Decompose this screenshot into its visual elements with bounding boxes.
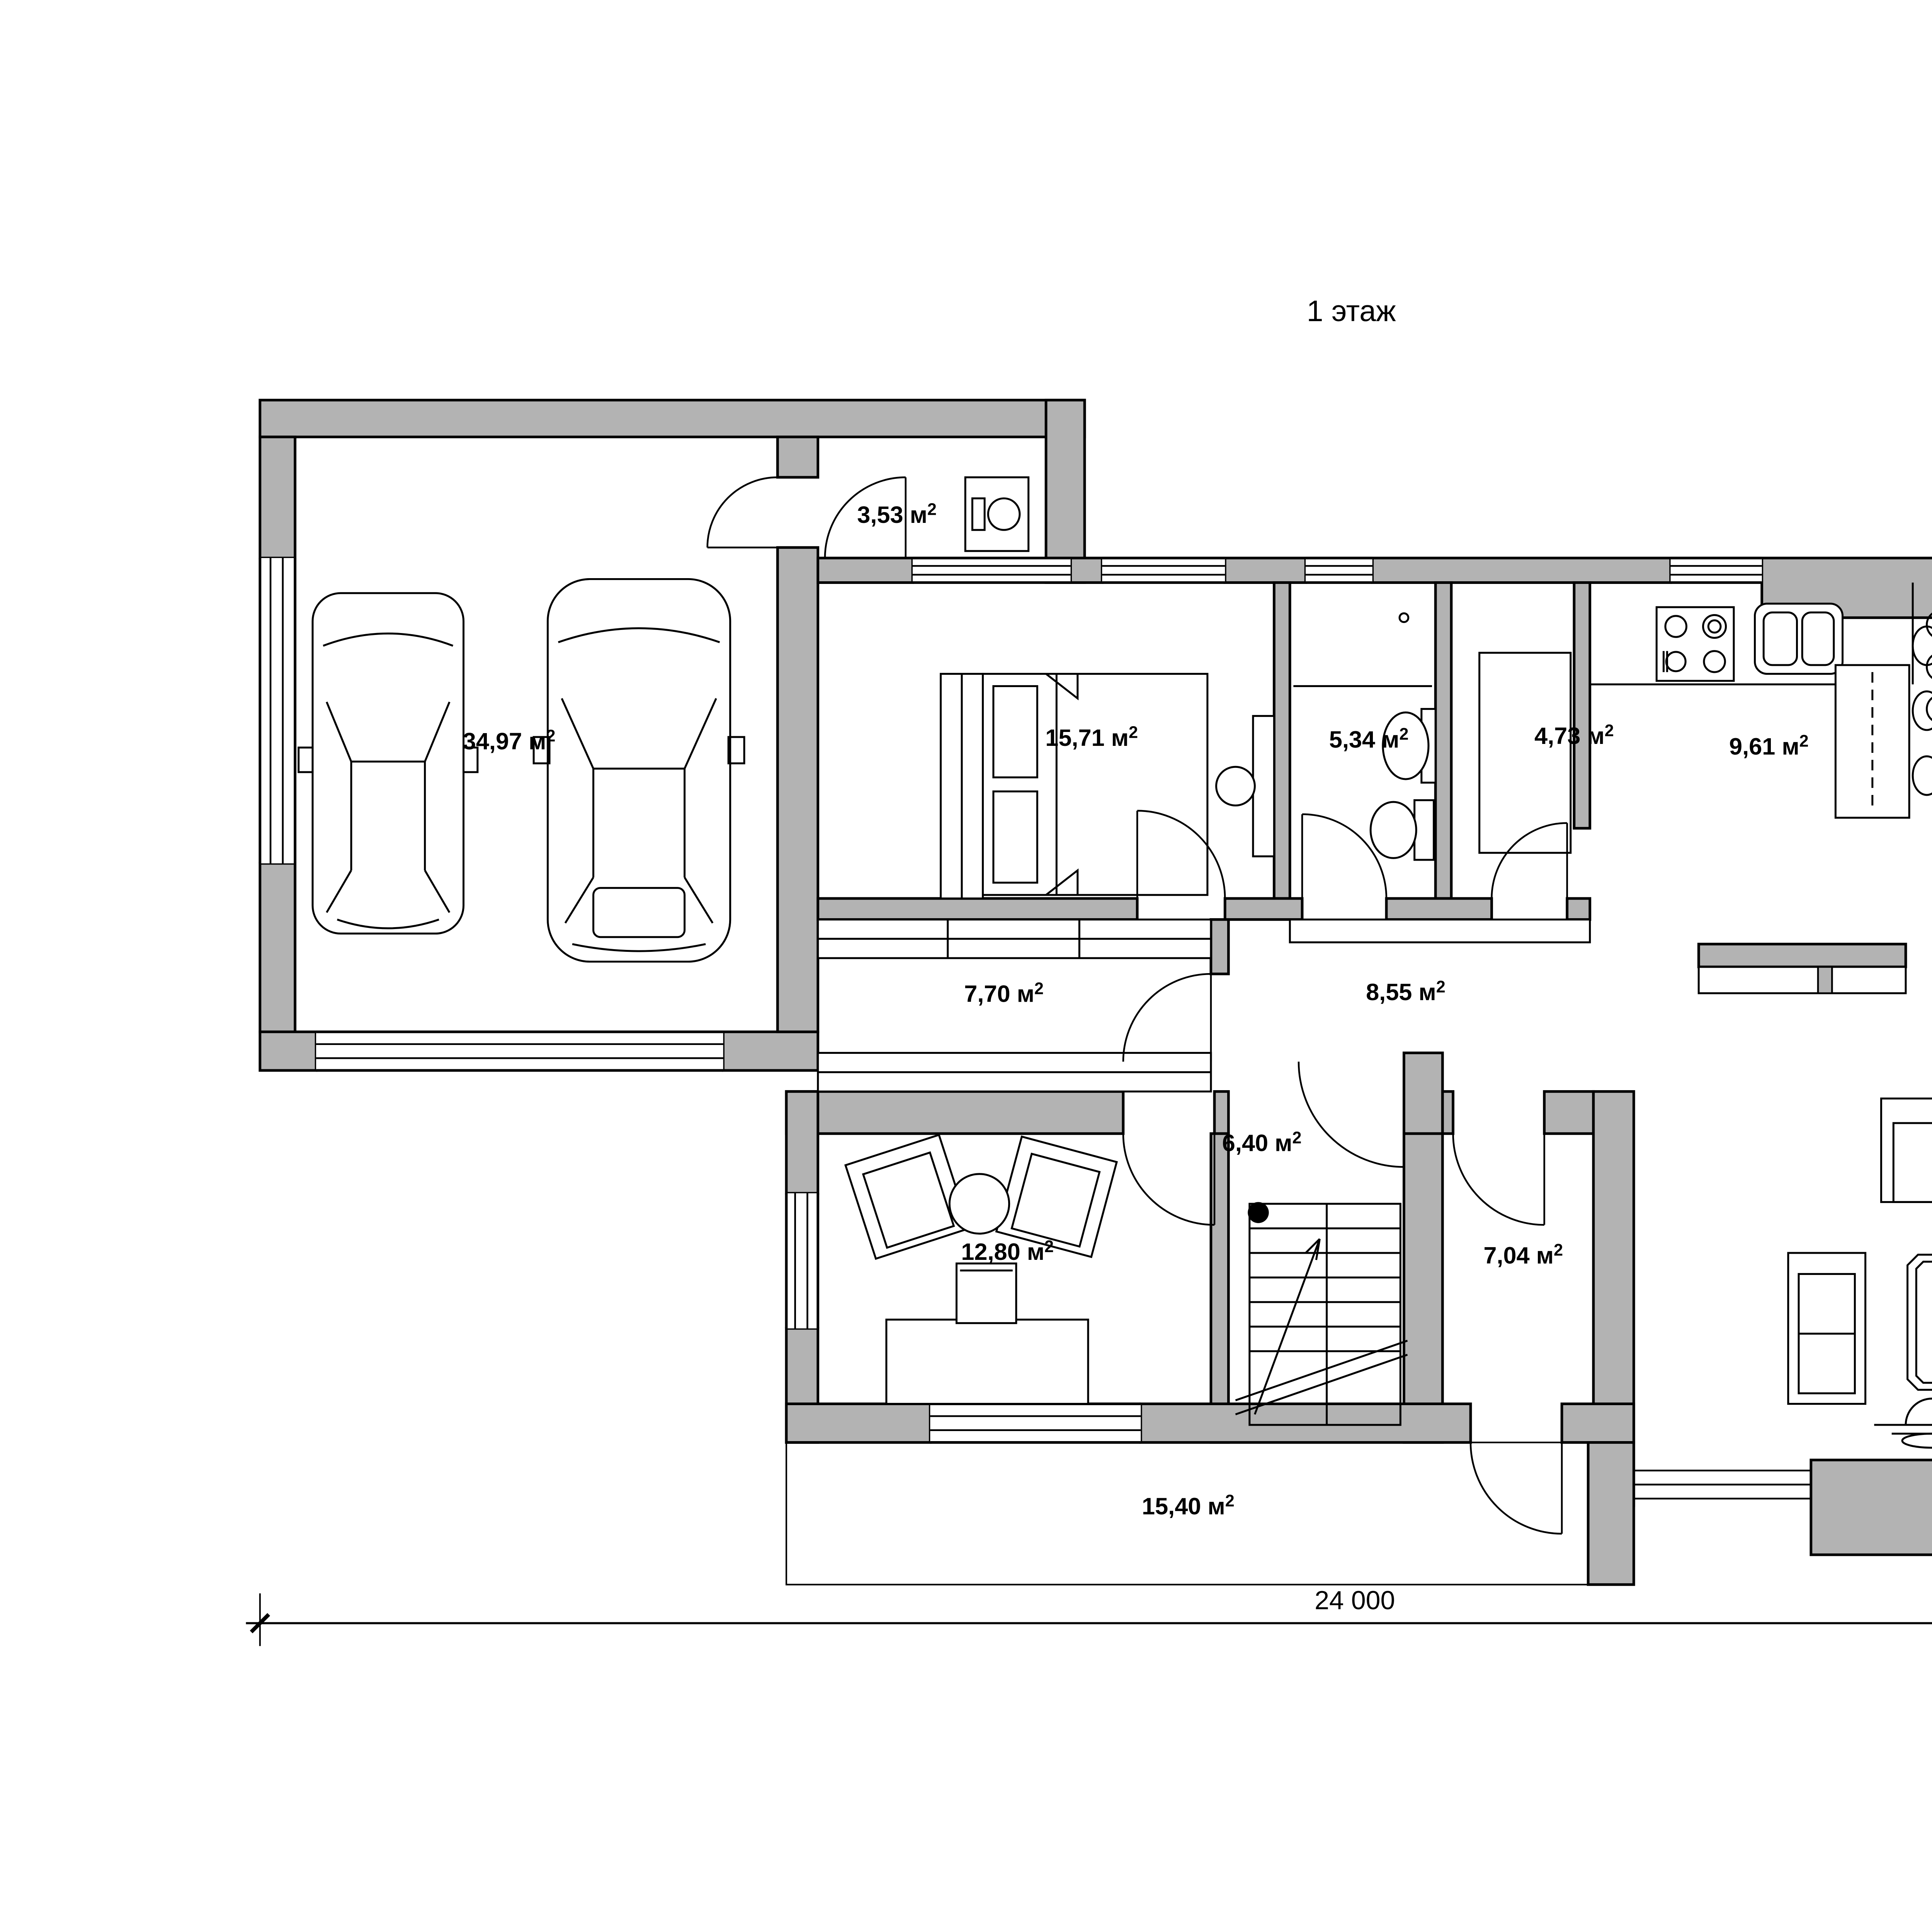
- bedroom-window-1: [913, 558, 1071, 583]
- study-window-west: [786, 1193, 818, 1329]
- door-stair-hall: [1299, 1062, 1404, 1167]
- area-label-corridor: 7,70 м2: [964, 979, 1044, 1007]
- area-label-entry: 7,04 м2: [1483, 1241, 1563, 1268]
- bed-icon: [983, 674, 1207, 895]
- kitchen-sink-icon: [1755, 604, 1843, 674]
- toilet-icon: [1371, 800, 1434, 860]
- staircase: [1235, 1202, 1407, 1425]
- area-label-boiler-room: 3,53 м2: [857, 500, 937, 528]
- boiler-icon: [965, 477, 1028, 551]
- corridor-closet-south: [818, 1053, 1211, 1091]
- dimension-width-label: 24 000: [1315, 1586, 1395, 1615]
- kitchen-island: [1699, 967, 1906, 993]
- area-label-kitchen: 9,61 м2: [1729, 732, 1809, 759]
- tv-cabinet-icon: [1881, 1098, 1932, 1202]
- page-title: 1 этаж: [1307, 294, 1396, 328]
- stove-icon: [1656, 607, 1734, 681]
- bedroom-window-2: [1102, 558, 1225, 583]
- door-corridor-hall: [1123, 974, 1211, 1062]
- area-label-hall: 8,55 м2: [1366, 978, 1446, 1005]
- car-icon: [534, 579, 744, 962]
- area-label-bathroom: 5,34 м2: [1329, 725, 1409, 752]
- corridor-closet-north: [818, 919, 1211, 958]
- area-label-study: 12,80 м2: [961, 1237, 1054, 1265]
- door-study: [1123, 1133, 1214, 1225]
- area-label-stair-hall: 6,40 м2: [1222, 1128, 1302, 1156]
- kitchen-window: [1671, 558, 1762, 583]
- door-garage-boiler: [707, 477, 778, 548]
- desk-icon: [886, 1263, 1088, 1404]
- armchair-icon: [1788, 1253, 1866, 1404]
- floor-plan-canvas: 1 этаж: [0, 0, 1932, 1918]
- door-entry-terrace: [1471, 1442, 1562, 1533]
- bedroom-furniture: [941, 674, 1274, 899]
- hall-bench: [1290, 919, 1590, 942]
- study-window-south: [930, 1404, 1141, 1443]
- garage-door: [316, 1032, 723, 1070]
- bar-stools: [1913, 626, 1932, 795]
- bar-peninsula: [1835, 665, 1909, 818]
- dressing-table-icon: [1216, 716, 1274, 856]
- area-label-garage: 34,97 м2: [463, 727, 556, 754]
- stair-newel-post: [1248, 1202, 1269, 1223]
- car-icon: [299, 593, 478, 934]
- door-entry-hall: [1453, 1133, 1544, 1225]
- dimension-bottom: 24 000: [246, 1567, 1932, 1646]
- area-label-terrace-south: 15,40 м2: [1142, 1492, 1235, 1519]
- garage-window: [260, 558, 295, 863]
- garage-cars: [299, 579, 744, 962]
- area-label-bedroom: 15,71 м2: [1045, 723, 1138, 751]
- area-label-pantry: 4,73 м2: [1534, 722, 1614, 749]
- pendant-lamp-icon: [1874, 1399, 1932, 1448]
- side-table-icon: [949, 1174, 1009, 1234]
- coffee-table-icon: [1908, 1255, 1932, 1390]
- bathroom-window: [1306, 558, 1372, 583]
- study-furniture: [845, 1135, 1117, 1404]
- floor-plan-page: 1 этаж: [0, 0, 1932, 1918]
